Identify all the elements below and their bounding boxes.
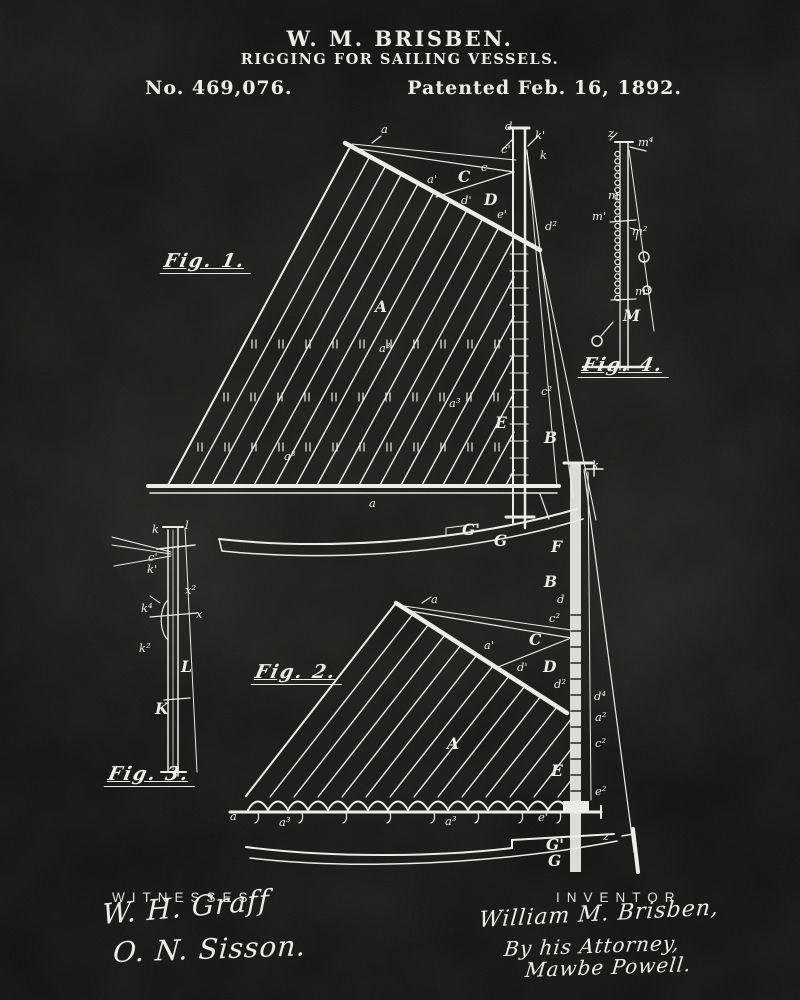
figure-label: G'	[462, 520, 480, 539]
figure-label: m³	[635, 284, 651, 298]
figure-label: C	[458, 167, 471, 186]
figure-label: z	[607, 126, 615, 140]
figure-label: a³	[449, 396, 461, 410]
figure-label: m⁴	[638, 135, 654, 149]
witness-signature-2: O. N. Sisson.	[112, 929, 307, 969]
figure-label: k'	[147, 562, 157, 576]
fig4-drawing: zm⁴mm'm²m³M	[583, 126, 654, 370]
figure-label: K	[154, 699, 169, 718]
figure-label: A	[373, 297, 387, 316]
figure-label: G	[548, 851, 561, 870]
figure-label: k	[592, 458, 599, 472]
figure-label: z	[602, 829, 610, 843]
figure-label: c²	[595, 736, 606, 750]
figure-label: e'	[497, 207, 507, 221]
figure-label: l	[185, 518, 189, 532]
figure-label: e'	[538, 810, 548, 824]
figure-label: c²	[541, 384, 552, 398]
figure-label: c'	[501, 142, 511, 156]
figure-label: L	[180, 657, 192, 676]
figure-label: a³	[445, 814, 457, 828]
figure-label: a³	[284, 449, 296, 463]
patent-poster: W. M. BRISBEN. RIGGING FOR SAILING VESSE…	[0, 0, 800, 1000]
patent-date: Patented Feb. 16, 1892.	[407, 77, 682, 99]
figure-label: d	[505, 119, 512, 133]
fig3-drawing: klc'k'x²k⁴xk²LK	[112, 518, 203, 776]
figure-label: a²	[595, 710, 607, 724]
figure-label: d'	[517, 660, 528, 674]
figure-label: d	[557, 592, 564, 606]
figure-label: m	[608, 188, 619, 202]
fig2-caption: Fig. 2.	[251, 663, 347, 685]
figure-label: k'	[535, 128, 545, 142]
figure-label: m'	[592, 209, 606, 223]
fig1-drawing: adk'c'kcCa'd'De'd²Aa³a³a³c²EBaG'G	[148, 119, 596, 556]
figure-label: a	[230, 809, 237, 823]
fig1-caption: Fig. 1.	[160, 252, 256, 274]
figure-label: d²	[545, 219, 557, 233]
figure-label: F	[550, 537, 563, 556]
figure-label: a'	[427, 172, 437, 186]
figure-label: a³	[279, 815, 291, 829]
patent-inventor-name: W. M. BRISBEN.	[0, 26, 800, 51]
figure-label: k⁴	[141, 601, 153, 615]
figure-label: d²	[554, 677, 566, 691]
figure-label: a	[369, 496, 376, 510]
figure-label: c	[481, 160, 488, 174]
figure-label: d⁴	[594, 689, 606, 703]
figure-label: k	[152, 522, 159, 536]
figure-label: m²	[632, 224, 648, 238]
figure-label: D	[542, 657, 557, 676]
figure-label: G	[494, 531, 507, 550]
figure-label: a³	[379, 341, 391, 355]
figure-label: a'	[484, 638, 494, 652]
figure-label: k²	[139, 641, 151, 655]
figure-label: k	[540, 148, 547, 162]
figure-label: a	[381, 122, 388, 136]
figure-label: E	[550, 761, 563, 780]
figure-label: c²	[549, 611, 560, 625]
patent-drawing: adk'c'kcCa'd'De'd²Aa³a³a³c²EBaG'G	[0, 0, 800, 1000]
patent-title: RIGGING FOR SAILING VESSELS.	[0, 51, 800, 68]
figure-label: M	[622, 306, 641, 325]
figure-label: e²	[595, 784, 607, 798]
figure-label: a	[431, 592, 438, 606]
figure-label: x	[196, 607, 203, 621]
figure-label: C	[529, 630, 542, 649]
figure-label: D	[483, 190, 498, 209]
fig3-caption: Fig. 3.	[104, 765, 200, 787]
figure-label: A	[445, 734, 459, 753]
figure-label: x²	[185, 583, 196, 597]
patent-number: No. 469,076.	[145, 77, 293, 99]
fig4-caption: Fig. 4.	[578, 356, 674, 378]
figure-label: d'	[461, 193, 472, 207]
figure-label: E	[494, 413, 507, 432]
figure-label: B	[543, 572, 557, 591]
figure-label: B	[543, 428, 557, 447]
